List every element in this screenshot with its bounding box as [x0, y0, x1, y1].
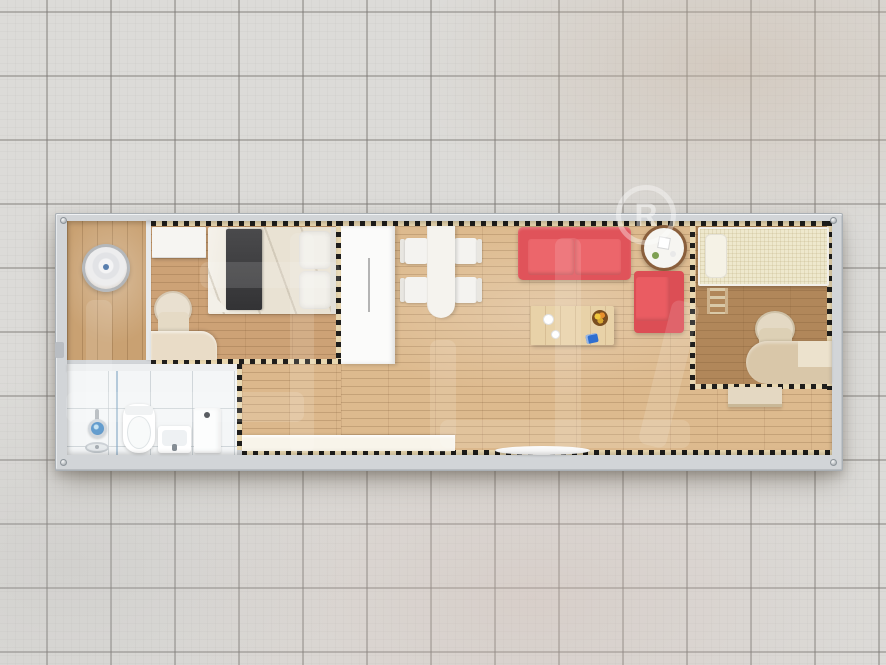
- bedroom2-low-cabinet: [728, 387, 782, 407]
- porch-decor-center: [103, 264, 109, 270]
- corner-bolt-bottom-left: [60, 459, 67, 466]
- shower-head: [88, 419, 107, 438]
- bedroom2-left-dashed-line: [690, 221, 695, 390]
- fruit-bowl: [592, 310, 608, 326]
- dining-chair-bottom-left: [400, 277, 428, 303]
- table-box-item: [657, 236, 671, 250]
- desk-light-section: [798, 341, 832, 367]
- red-sofa: [518, 227, 631, 280]
- bed-headboard: [331, 227, 336, 314]
- armchair-seat: [636, 277, 670, 321]
- basin-faucet: [172, 444, 177, 451]
- loft-ladder: [707, 288, 728, 314]
- bed-pillow-1: [299, 231, 331, 269]
- dining-chair-top-left: [400, 238, 428, 264]
- left-wall-hinge: [55, 342, 64, 358]
- tall-wardrobe: [341, 226, 395, 364]
- bed-pillow-2: [299, 271, 331, 309]
- single-bed: [698, 227, 829, 286]
- chair-backrest: [477, 278, 482, 302]
- bathroom-cabinet: [194, 408, 221, 453]
- bedroom1-desk: [151, 331, 217, 360]
- chair-seat: [454, 238, 477, 264]
- chair-backrest: [477, 239, 482, 263]
- double-bed: [208, 227, 336, 314]
- toilet-lid: [127, 416, 151, 449]
- toilet: [123, 404, 155, 453]
- chair-seat: [405, 238, 428, 264]
- white-plate-1: [543, 314, 554, 325]
- toilet-tank: [125, 406, 153, 415]
- door-mat: [495, 446, 590, 455]
- corner-bolt-top-right: [830, 217, 837, 224]
- shower-glass-screen: [116, 371, 118, 455]
- bedroom2-desk: [746, 341, 832, 384]
- wash-basin: [158, 426, 191, 453]
- dining-chair-bottom-right: [454, 277, 482, 303]
- bed-runner-dark: [226, 229, 262, 310]
- red-armchair: [634, 271, 684, 333]
- kitchen-counter: [242, 435, 455, 451]
- round-side-table: [641, 225, 687, 271]
- corner-bolt-top-left: [60, 217, 67, 224]
- sofa-cushion-right: [575, 239, 621, 275]
- corner-bolt-bottom-right: [830, 459, 837, 466]
- bed2-pillow: [705, 234, 727, 278]
- top-wall-dashed-line: [151, 221, 832, 226]
- sofa-cushion-left: [528, 239, 574, 275]
- floor-plan-render: 柜族 R: [0, 0, 886, 665]
- white-plate-2: [551, 330, 560, 339]
- dining-table: [427, 226, 455, 318]
- chair-seat: [454, 277, 477, 303]
- chair-seat: [405, 277, 428, 303]
- drain-center: [95, 445, 99, 449]
- watermark-text-hidden: 柜族: [0, 0, 1, 1]
- green-cup: [652, 252, 659, 259]
- bedroom1-cabinet: [152, 227, 206, 258]
- blue-item: [585, 333, 599, 344]
- dining-chair-top-right: [454, 238, 482, 264]
- cabinet-knob: [204, 412, 210, 418]
- small-dish: [670, 251, 676, 257]
- wardrobe-handle: [368, 258, 370, 312]
- coffee-table: [530, 306, 614, 345]
